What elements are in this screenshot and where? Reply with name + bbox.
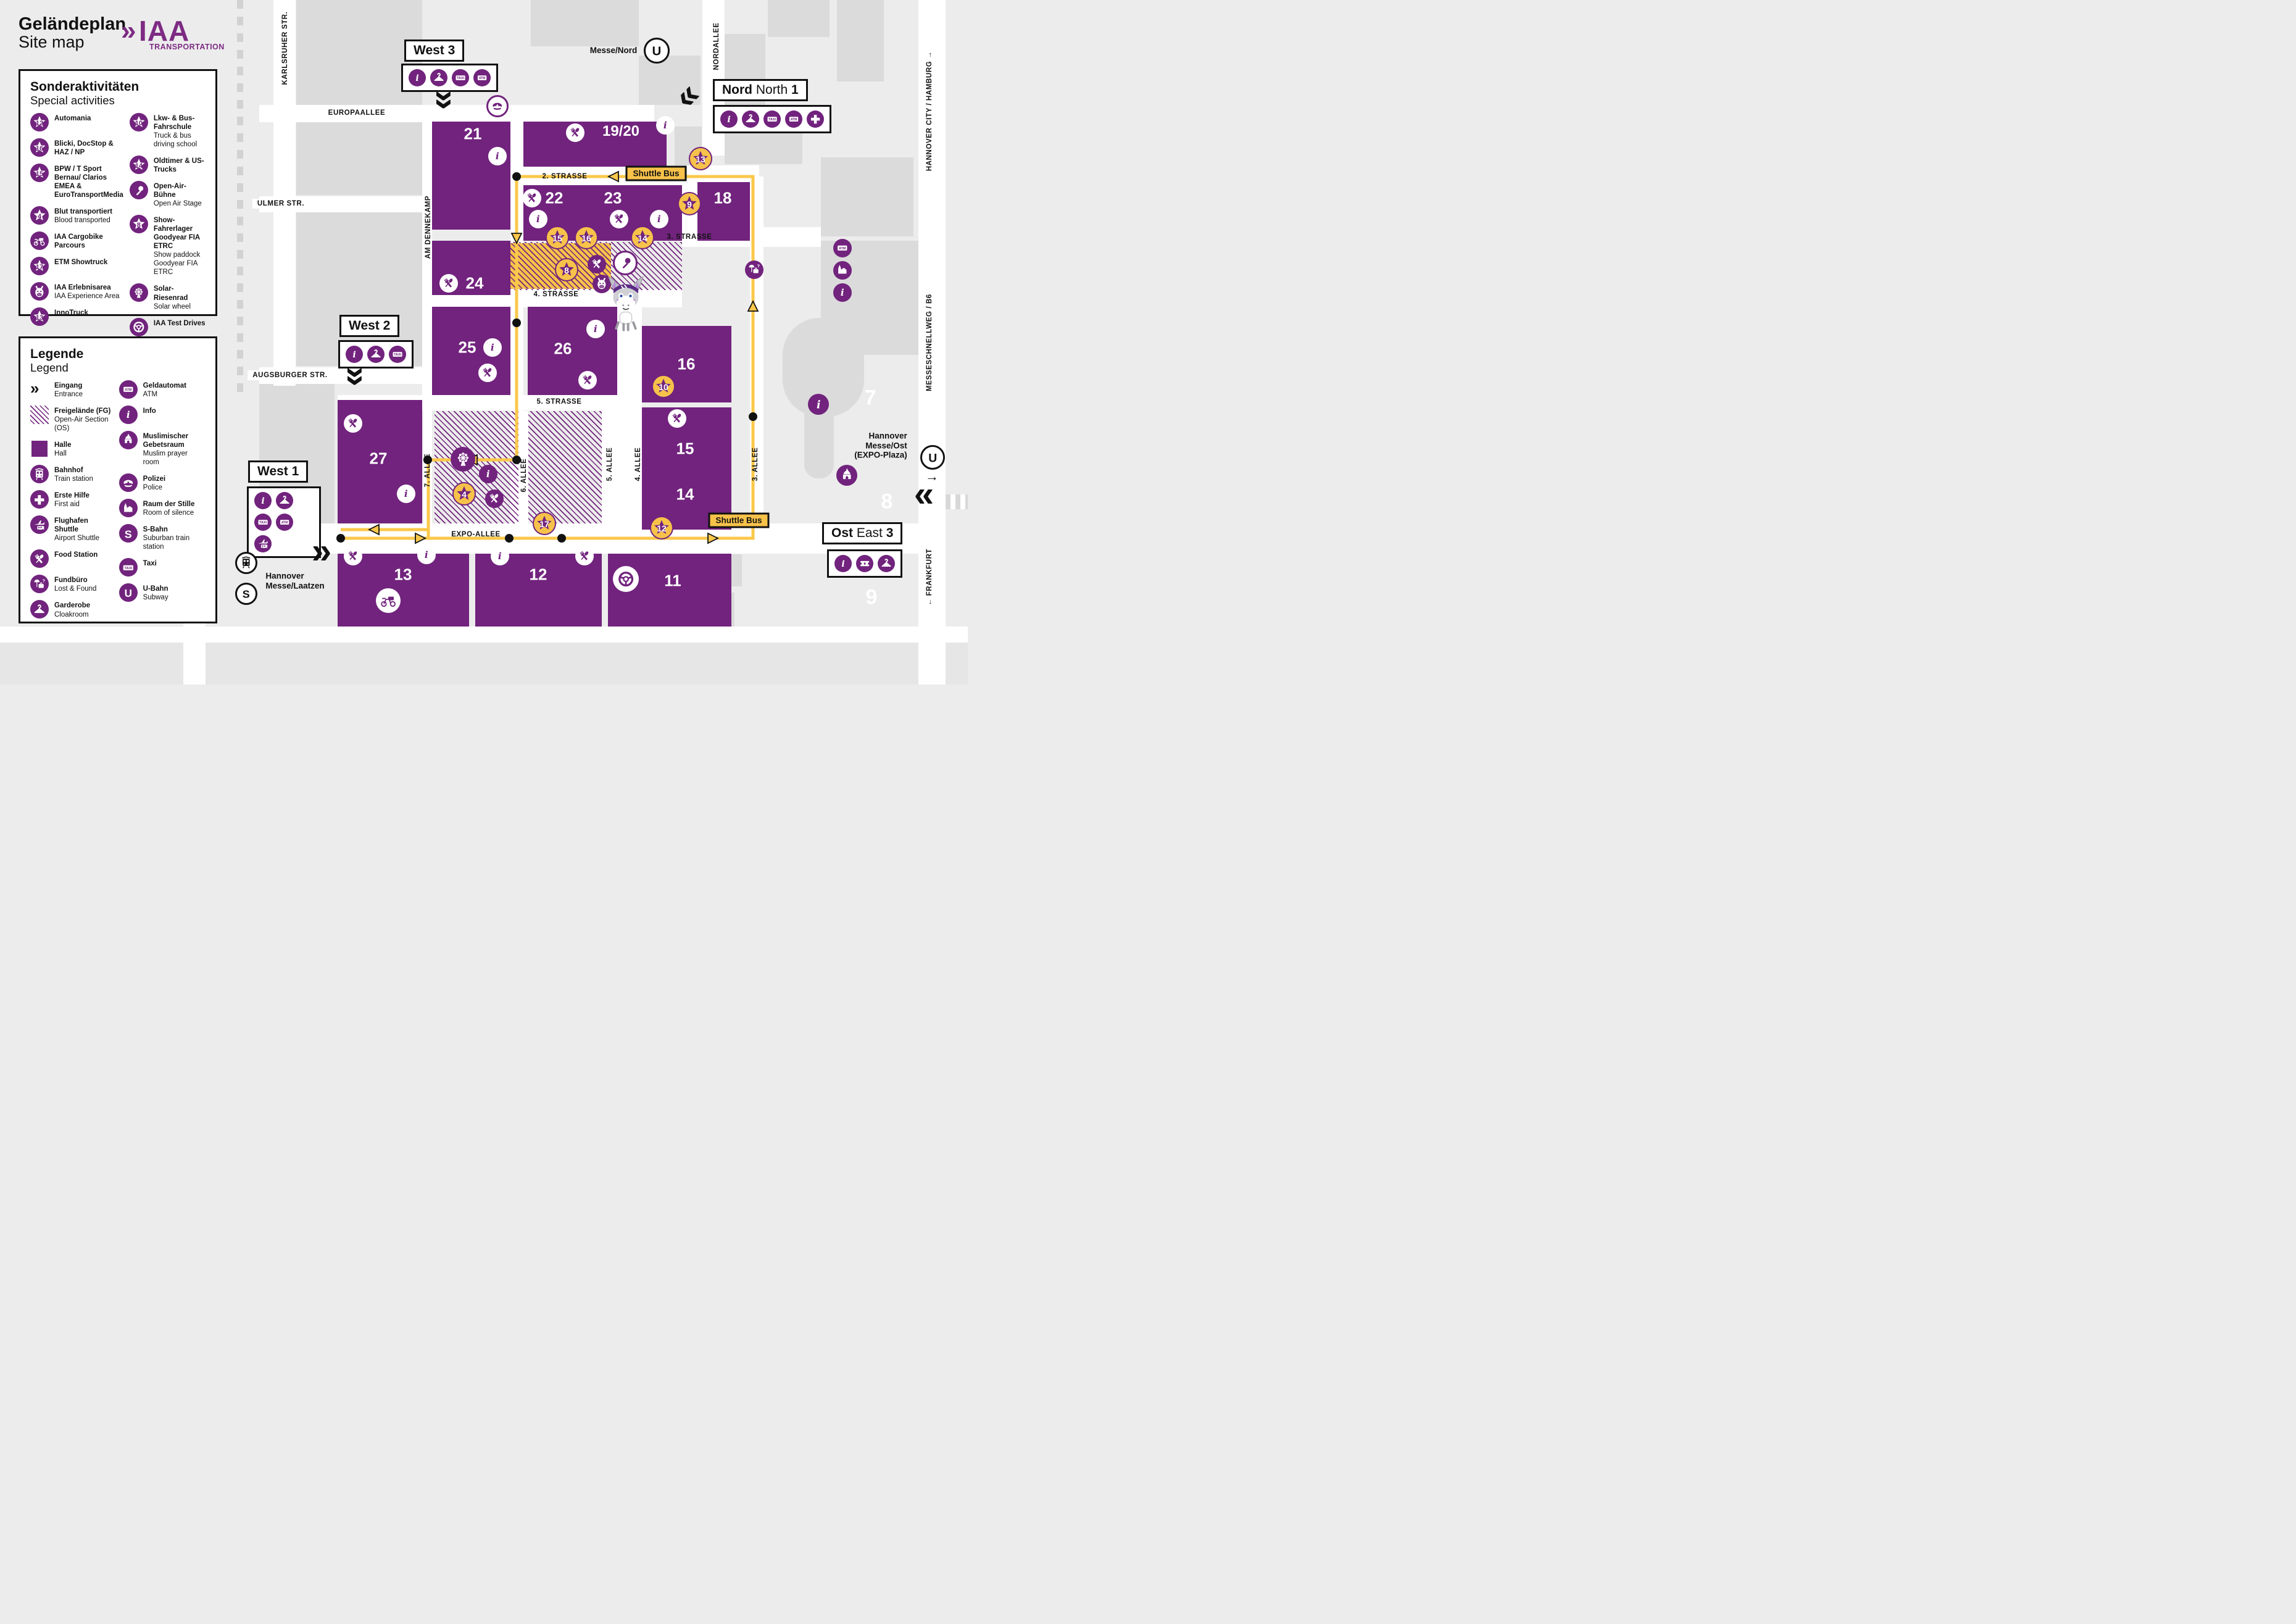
atm-icon: ATM bbox=[476, 72, 488, 84]
mosque-icon bbox=[839, 468, 854, 483]
legend-title-en: Legend bbox=[30, 362, 206, 375]
star-badge: 8 bbox=[130, 215, 148, 233]
legend-item-entrance: »EingangEntrance bbox=[30, 380, 113, 399]
legend-title-de: Legende bbox=[30, 347, 206, 362]
star-number: 8 bbox=[564, 265, 569, 275]
food-icon bbox=[442, 277, 455, 290]
special-activity-star-13: 13 bbox=[689, 147, 712, 170]
legend-label-de: Geldautomat bbox=[143, 381, 186, 390]
food-icon bbox=[578, 549, 591, 563]
street bbox=[0, 627, 968, 643]
star-number: 9 bbox=[687, 199, 692, 209]
street-label-a5: 5. ALLEE bbox=[606, 448, 614, 481]
activity-label-de: ETM Showtruck bbox=[54, 258, 107, 267]
legend-label-de: Taxi bbox=[143, 559, 157, 568]
airport-icon bbox=[257, 538, 269, 550]
airport-icon bbox=[33, 518, 46, 532]
hall-label-12: 12 bbox=[530, 565, 547, 585]
sbahn-icon: S bbox=[119, 524, 138, 543]
activity-item: 4Blut transportiertBlood transported bbox=[30, 206, 123, 225]
special-title-en: Special activities bbox=[30, 94, 206, 107]
entrance-chevron-icon: » bbox=[343, 367, 371, 386]
legend-label-de: Flughafen Shuttle bbox=[54, 517, 113, 534]
taxi-icon: TAXI bbox=[391, 348, 404, 360]
svg-text:S: S bbox=[243, 588, 250, 601]
info-icon: i bbox=[483, 338, 502, 357]
svg-text:ATM: ATM bbox=[839, 247, 846, 251]
info-icon: i bbox=[346, 346, 363, 363]
hall-label-23: 23 bbox=[604, 189, 622, 208]
cloakroom-icon bbox=[278, 494, 291, 507]
entrance-chevron-icon: » bbox=[30, 380, 49, 396]
star-badge: 17 bbox=[30, 257, 49, 275]
legend-label-de: Bahnhof bbox=[54, 466, 93, 475]
star-badge: 14 bbox=[130, 156, 148, 174]
legend-label-en: Airport Shuttle bbox=[54, 534, 113, 543]
info-icon: i bbox=[420, 548, 433, 562]
street-label-s2: 2. STRASSE bbox=[542, 173, 587, 180]
svg-text:ATM: ATM bbox=[479, 77, 486, 80]
activity-label-en: IAA Experience Area bbox=[54, 292, 119, 301]
legend-label-de: Raum der Stille bbox=[143, 500, 195, 509]
star-badge: 4 bbox=[30, 206, 49, 225]
steering-icon bbox=[613, 566, 639, 592]
steering-icon bbox=[617, 570, 635, 588]
taxi-icon: TAXI bbox=[119, 558, 138, 577]
activity-item: 10Lkw- & Bus-FahrschuleTruck & bus drivi… bbox=[130, 113, 206, 149]
gray-hall-label-9: 9 bbox=[866, 586, 878, 610]
atm-icon: ATM bbox=[276, 514, 293, 531]
building-block bbox=[296, 122, 422, 195]
legend-item-hall: HalleHall bbox=[30, 439, 113, 458]
station-label-laatzen: Hannover Messe/Laatzen bbox=[265, 571, 324, 590]
arrow-right-icon: → bbox=[925, 468, 939, 485]
activity-item: Open-Air-BühneOpen Air Stage bbox=[130, 181, 206, 208]
hall-label-14: 14 bbox=[676, 485, 694, 504]
special-title-de: Sonderaktivitäten bbox=[30, 80, 206, 94]
legend-item-ubahn: UU-BahnSubway bbox=[119, 583, 206, 602]
entrance-name-en: East bbox=[857, 526, 883, 540]
food-icon bbox=[612, 212, 626, 226]
ferris-icon bbox=[454, 451, 472, 468]
cloakroom-icon bbox=[433, 72, 445, 84]
star-number: 17 bbox=[539, 519, 549, 529]
title-de: Geländeplan bbox=[19, 15, 126, 33]
legend-label-de: Erste Hilfe bbox=[54, 491, 89, 500]
pedestrian-crossing bbox=[946, 494, 968, 509]
atm-icon: ATM bbox=[278, 516, 291, 528]
svg-text:TAXI: TAXI bbox=[457, 77, 464, 80]
entrance-name-de: West bbox=[257, 464, 288, 478]
svg-text:i: i bbox=[261, 496, 264, 506]
atm-icon: ATM bbox=[122, 383, 135, 396]
street-label-frankfurt: ← FRANKFURT bbox=[926, 549, 933, 606]
info-icon: i bbox=[491, 547, 509, 565]
lostfound-icon: ? bbox=[33, 578, 46, 591]
cargobike-icon bbox=[380, 592, 397, 610]
cloakroom-icon bbox=[33, 603, 46, 617]
entrance-number: 1 bbox=[791, 83, 799, 97]
street-label-hamburg: HANNOVER CITY / HAMBURG → bbox=[926, 51, 933, 171]
train-station-icon bbox=[235, 552, 257, 574]
entrance-west1-services: iTAXIATM bbox=[247, 486, 321, 558]
street-label-ulmer: ULMER STR. bbox=[252, 199, 309, 209]
firstaid-icon bbox=[33, 493, 46, 507]
info-icon: i bbox=[723, 113, 735, 125]
entrance-west2-services: iTAXI bbox=[338, 340, 414, 369]
street-label-schnellweg: MESSESCHNELLWEG / B6 bbox=[926, 294, 933, 391]
hall-swatch bbox=[31, 441, 48, 457]
street-label-a7: 7. ALLEE bbox=[424, 454, 431, 488]
food-icon bbox=[485, 489, 504, 508]
police-icon bbox=[491, 99, 504, 113]
hall-label-25: 25 bbox=[459, 338, 476, 357]
legend-label-en: Muslim prayer room bbox=[143, 449, 206, 467]
cargobike-icon bbox=[30, 231, 49, 250]
taxi-icon: TAXI bbox=[122, 561, 135, 575]
svg-text:ATM: ATM bbox=[125, 388, 132, 392]
mic-icon bbox=[613, 251, 638, 275]
svg-text:i: i bbox=[404, 488, 408, 499]
activity-label-de: Blut transportiert bbox=[54, 207, 112, 216]
info-icon: i bbox=[488, 147, 507, 165]
star-number: 8 bbox=[137, 222, 141, 229]
star-badge: 13 bbox=[30, 307, 49, 326]
train-icon bbox=[30, 465, 49, 483]
legend-item-food: Food Station bbox=[30, 549, 113, 568]
legend-label-de: Halle bbox=[54, 441, 72, 449]
legend-item-info: iInfo bbox=[119, 406, 206, 424]
food-icon bbox=[481, 366, 494, 380]
info-icon: i bbox=[486, 341, 499, 354]
special-activities-panel: Sonderaktivitäten Special activities 12A… bbox=[19, 69, 217, 316]
street-label-augsburger: AUGSBURGER STR. bbox=[247, 370, 332, 380]
firstaid-icon bbox=[809, 113, 821, 125]
church-icon bbox=[836, 264, 849, 277]
info-icon: i bbox=[811, 397, 826, 412]
ubahn-icon: U bbox=[649, 43, 665, 59]
legend-item-church: Raum der StilleRoom of silence bbox=[119, 499, 206, 517]
mic-icon bbox=[130, 181, 148, 199]
activity-item: 8Show-Fahrerlager Goodyear FIA ETRCShow … bbox=[130, 215, 206, 277]
building-block bbox=[821, 157, 913, 236]
special-activity-star-4: 4 bbox=[452, 482, 476, 506]
cloakroom-icon bbox=[276, 492, 293, 509]
legend-item-sbahn: SS-BahnSuburban train station bbox=[119, 524, 206, 551]
svg-text:i: i bbox=[657, 214, 661, 225]
star-number: 10 bbox=[659, 382, 668, 392]
taxi-icon: TAXI bbox=[254, 514, 272, 531]
info-icon: i bbox=[836, 286, 849, 299]
activity-label-de: IAA Test Drives bbox=[154, 319, 206, 328]
svg-text:i: i bbox=[727, 115, 730, 125]
entrance-west3-services: iTAXIATM bbox=[401, 64, 498, 92]
mosque-icon bbox=[836, 465, 857, 486]
entrance-name-de: Ost bbox=[831, 526, 853, 540]
gray-hall-label-7: 7 bbox=[865, 386, 876, 410]
activity-label-en: Solar wheel bbox=[154, 302, 206, 311]
info-icon: i bbox=[720, 110, 738, 128]
activity-item: Solar-RiesenradSolar wheel bbox=[130, 283, 206, 310]
hall-label-11: 11 bbox=[664, 572, 681, 591]
svg-text:U: U bbox=[124, 588, 131, 599]
food-icon bbox=[578, 371, 597, 389]
legend-label-en: ATM bbox=[143, 390, 186, 399]
lostfound-icon: ? bbox=[30, 575, 49, 593]
legend-item-taxi: TAXITaxi bbox=[119, 558, 206, 577]
dashed-lane bbox=[237, 0, 243, 395]
info-icon: i bbox=[348, 348, 360, 360]
svg-text:S: S bbox=[125, 528, 132, 540]
star-badge: 15 bbox=[30, 164, 49, 182]
mic-icon bbox=[132, 184, 146, 198]
airport-icon bbox=[254, 535, 272, 552]
food-icon bbox=[439, 274, 458, 293]
entrance-chevron-icon: » bbox=[431, 90, 460, 110]
shuttle-bus-badge: Shuttle Bus bbox=[708, 513, 769, 528]
legend-label-en: Cloakroom bbox=[54, 610, 90, 619]
svg-text:i: i bbox=[817, 399, 821, 411]
food-icon bbox=[523, 189, 541, 207]
star-number: 17 bbox=[36, 264, 43, 271]
special-activity-star-16: 16 bbox=[575, 226, 598, 249]
cloakroom-icon bbox=[30, 600, 49, 618]
hall-label-24: 24 bbox=[466, 274, 484, 293]
mascotface-icon bbox=[30, 282, 49, 301]
svg-text:TAXI: TAXI bbox=[768, 118, 776, 122]
info-icon: i bbox=[411, 72, 423, 84]
legend-label-en: Entrance bbox=[54, 390, 83, 399]
legend-label-de: Muslimischer Gebetsraum bbox=[143, 432, 206, 449]
legend-item-mosque: Muslimischer GebetsraumMuslim prayer roo… bbox=[119, 431, 206, 467]
mic-icon bbox=[618, 256, 633, 270]
legend-label-en: Room of silence bbox=[143, 509, 195, 517]
atm-icon: ATM bbox=[788, 113, 800, 125]
info-icon: i bbox=[481, 467, 495, 481]
entrance-name-de: West bbox=[349, 319, 380, 333]
street-label-s3: 3. STRASSE bbox=[667, 233, 712, 241]
special-activity-star-10: 10 bbox=[652, 375, 675, 398]
star-number: 15 bbox=[552, 233, 562, 243]
hall-label-26: 26 bbox=[554, 339, 572, 359]
entrance-name-en: North bbox=[756, 83, 788, 97]
entrance-number: 3 bbox=[886, 526, 894, 540]
info-icon: i bbox=[529, 210, 547, 228]
legend-panel: Legende Legend »EingangEntranceFreigelän… bbox=[19, 336, 217, 623]
food-icon bbox=[610, 210, 628, 228]
svg-text:U: U bbox=[928, 451, 937, 465]
legend-label-de: U-Bahn bbox=[143, 585, 168, 593]
hall-label-18: 18 bbox=[714, 189, 732, 208]
atm-icon: ATM bbox=[473, 69, 491, 86]
cloakroom-icon bbox=[880, 557, 892, 570]
star-number: 4 bbox=[38, 213, 41, 220]
legend-label-de: Eingang bbox=[54, 381, 83, 390]
cloakroom-icon bbox=[430, 69, 447, 86]
street-label-dennekamp: AM DENNEKAMP bbox=[425, 196, 432, 259]
legend-item-train: BahnhofTrain station bbox=[30, 465, 113, 483]
activity-label-de: Open-Air-Bühne bbox=[154, 182, 206, 199]
building-block bbox=[531, 0, 639, 46]
info-icon: i bbox=[650, 210, 668, 228]
legend-label-en: Open-Air Section (OS) bbox=[54, 415, 113, 433]
svg-text:i: i bbox=[663, 120, 667, 131]
star-number: 15 bbox=[36, 170, 43, 178]
entrance-number: 2 bbox=[383, 319, 391, 333]
star-number: 16 bbox=[581, 233, 591, 243]
entrance-number: 1 bbox=[292, 464, 299, 478]
ferris-icon bbox=[130, 283, 148, 302]
police-icon bbox=[486, 95, 509, 117]
activity-label-de: BPW / T Sport Bernau/ Clarios EMEA & Eur… bbox=[54, 165, 123, 199]
lostfound-icon: ? bbox=[747, 263, 761, 277]
info-icon: i bbox=[399, 487, 413, 501]
lostfound-icon: ? bbox=[745, 260, 763, 279]
hall-label-15: 15 bbox=[676, 439, 694, 459]
legend-item-cloakroom: GarderobeCloakroom bbox=[30, 600, 113, 618]
atm-icon: ATM bbox=[785, 110, 802, 128]
info-icon: i bbox=[397, 485, 415, 503]
svg-text:i: i bbox=[127, 410, 130, 421]
entrance-nord1-label: Nord North 1 bbox=[713, 79, 808, 101]
page-title: Geländeplan Site map bbox=[19, 15, 126, 52]
entrance-ost3-label: Ost East 3 bbox=[822, 522, 902, 544]
legend-label-en: Police bbox=[143, 483, 165, 492]
svg-text:i: i bbox=[594, 323, 597, 335]
special-activity-star-8: 8 bbox=[555, 258, 578, 281]
food-icon bbox=[670, 412, 684, 425]
activity-item: IAA ErlebnisareaIAA Experience Area bbox=[30, 282, 123, 301]
activity-label-de: Blicki, DocStop & HAZ / NP bbox=[54, 139, 123, 157]
firstaid-icon bbox=[807, 110, 824, 128]
entrance-west2-label: West 2 bbox=[339, 315, 399, 337]
activity-label-de: Automania bbox=[54, 114, 91, 123]
special-activity-star-12: 12 bbox=[650, 516, 673, 539]
cloakroom-icon bbox=[742, 110, 759, 128]
food-icon bbox=[575, 547, 594, 565]
star-badge: 12 bbox=[30, 113, 49, 131]
police-icon bbox=[119, 473, 138, 492]
info-icon: i bbox=[808, 394, 829, 415]
entrance-number: 3 bbox=[448, 43, 455, 57]
cloakroom-icon bbox=[878, 555, 895, 572]
activity-label-en: Blood transported bbox=[54, 216, 112, 225]
food-icon bbox=[30, 549, 49, 568]
food-icon bbox=[566, 123, 584, 142]
street-label-a3: 3. ALLEE bbox=[752, 448, 759, 481]
atm-icon: ATM bbox=[833, 239, 852, 257]
legend-label-en: Hall bbox=[54, 449, 72, 458]
info-icon: i bbox=[257, 494, 269, 507]
food-icon bbox=[525, 191, 539, 205]
legend-label-de: Freigelände (FG) bbox=[54, 407, 113, 415]
ubahn-icon: U bbox=[119, 583, 138, 602]
food-icon bbox=[588, 255, 606, 273]
church-icon bbox=[119, 499, 138, 517]
svg-text:i: i bbox=[536, 214, 540, 225]
entrance-name-de: Nord bbox=[722, 83, 752, 97]
hall-label-21: 21 bbox=[464, 125, 482, 144]
svg-text:i: i bbox=[496, 151, 499, 162]
info-icon: i bbox=[837, 557, 849, 570]
special-activity-star-15: 15 bbox=[546, 226, 569, 249]
legend-item-airport: Flughafen ShuttleAirport Shuttle bbox=[30, 515, 113, 543]
activity-label-de: IAA Erlebnisarea bbox=[54, 283, 119, 292]
food-icon bbox=[568, 126, 582, 139]
legend-label-de: Fundbüro bbox=[54, 576, 96, 585]
gray-hall-label-8: 8 bbox=[881, 490, 893, 514]
airport-icon bbox=[30, 515, 49, 534]
svg-text:TAXI: TAXI bbox=[259, 521, 267, 525]
ferris-icon bbox=[132, 286, 146, 300]
legend-label-de: Food Station bbox=[54, 551, 98, 559]
legend-label-en: Lost & Found bbox=[54, 585, 96, 593]
activity-item: 12Automania bbox=[30, 113, 123, 131]
mascot-illustration bbox=[602, 275, 650, 331]
street-label-s5: 5. STRASSE bbox=[536, 398, 581, 406]
hall-label-16: 16 bbox=[678, 355, 696, 374]
activity-label-en: Truck & bus driving school bbox=[154, 131, 206, 149]
cargobike-icon bbox=[33, 235, 46, 248]
svg-text:i: i bbox=[486, 468, 490, 480]
ubahn-station-icon: U bbox=[920, 445, 945, 470]
train-icon bbox=[239, 556, 253, 570]
logo-chevrons-icon: » bbox=[121, 19, 136, 43]
title-en: Site map bbox=[19, 33, 126, 52]
activity-item: IAA Test Drives bbox=[130, 318, 206, 336]
svg-text:ATM: ATM bbox=[791, 118, 797, 122]
star-number: 16 bbox=[36, 145, 43, 152]
svg-text:i: i bbox=[841, 559, 844, 569]
svg-text:TAXI: TAXI bbox=[124, 567, 132, 570]
svg-text:i: i bbox=[415, 73, 418, 83]
svg-text:ATM: ATM bbox=[281, 521, 288, 525]
open-air-swatch bbox=[30, 406, 49, 424]
street-label-s4: 4. STRASSE bbox=[533, 291, 578, 298]
activity-item: 14Oldtimer & US-Trucks bbox=[130, 156, 206, 174]
info-icon: i bbox=[409, 69, 426, 86]
street-label-karlsruher: KARLSRUHER STR. bbox=[281, 12, 289, 85]
svg-text:?: ? bbox=[43, 578, 46, 583]
legend-item-police: PolizeiPolice bbox=[119, 473, 206, 492]
entrance-ost3-services: i bbox=[827, 549, 902, 578]
activity-item: 15BPW / T Sport Bernau/ Clarios EMEA & E… bbox=[30, 164, 123, 199]
entrance-nord1-services: iTAXIATM bbox=[713, 105, 831, 133]
star-number: 14 bbox=[638, 233, 647, 243]
activity-label-en: Open Air Stage bbox=[154, 199, 206, 208]
hall-label-13: 13 bbox=[394, 565, 412, 585]
legend-label-en: Suburban train station bbox=[143, 534, 206, 551]
cargobike-icon bbox=[376, 588, 401, 613]
street-label-a4: 4. ALLEE bbox=[634, 448, 642, 481]
info-icon: i bbox=[659, 119, 672, 132]
open-air-section bbox=[435, 411, 518, 523]
hall-label-22: 22 bbox=[546, 189, 564, 208]
cloakroom-icon bbox=[367, 346, 385, 363]
sbahn-station-icon: S bbox=[235, 583, 257, 605]
svg-text:U: U bbox=[652, 44, 662, 59]
info-icon: i bbox=[479, 465, 497, 483]
activity-item: 16Blicki, DocStop & HAZ / NP bbox=[30, 138, 123, 157]
info-icon: i bbox=[834, 555, 852, 572]
star-number: 4 bbox=[462, 489, 467, 499]
firstaid-icon bbox=[30, 490, 49, 509]
svg-text:i: i bbox=[352, 350, 356, 360]
street-label-europaallee: EUROPAALLEE bbox=[328, 109, 386, 117]
info-icon: i bbox=[656, 116, 675, 135]
activity-label-de: Show-Fahrerlager Goodyear FIA ETRC bbox=[154, 216, 206, 251]
entrance-chevron-icon: » bbox=[312, 537, 331, 565]
